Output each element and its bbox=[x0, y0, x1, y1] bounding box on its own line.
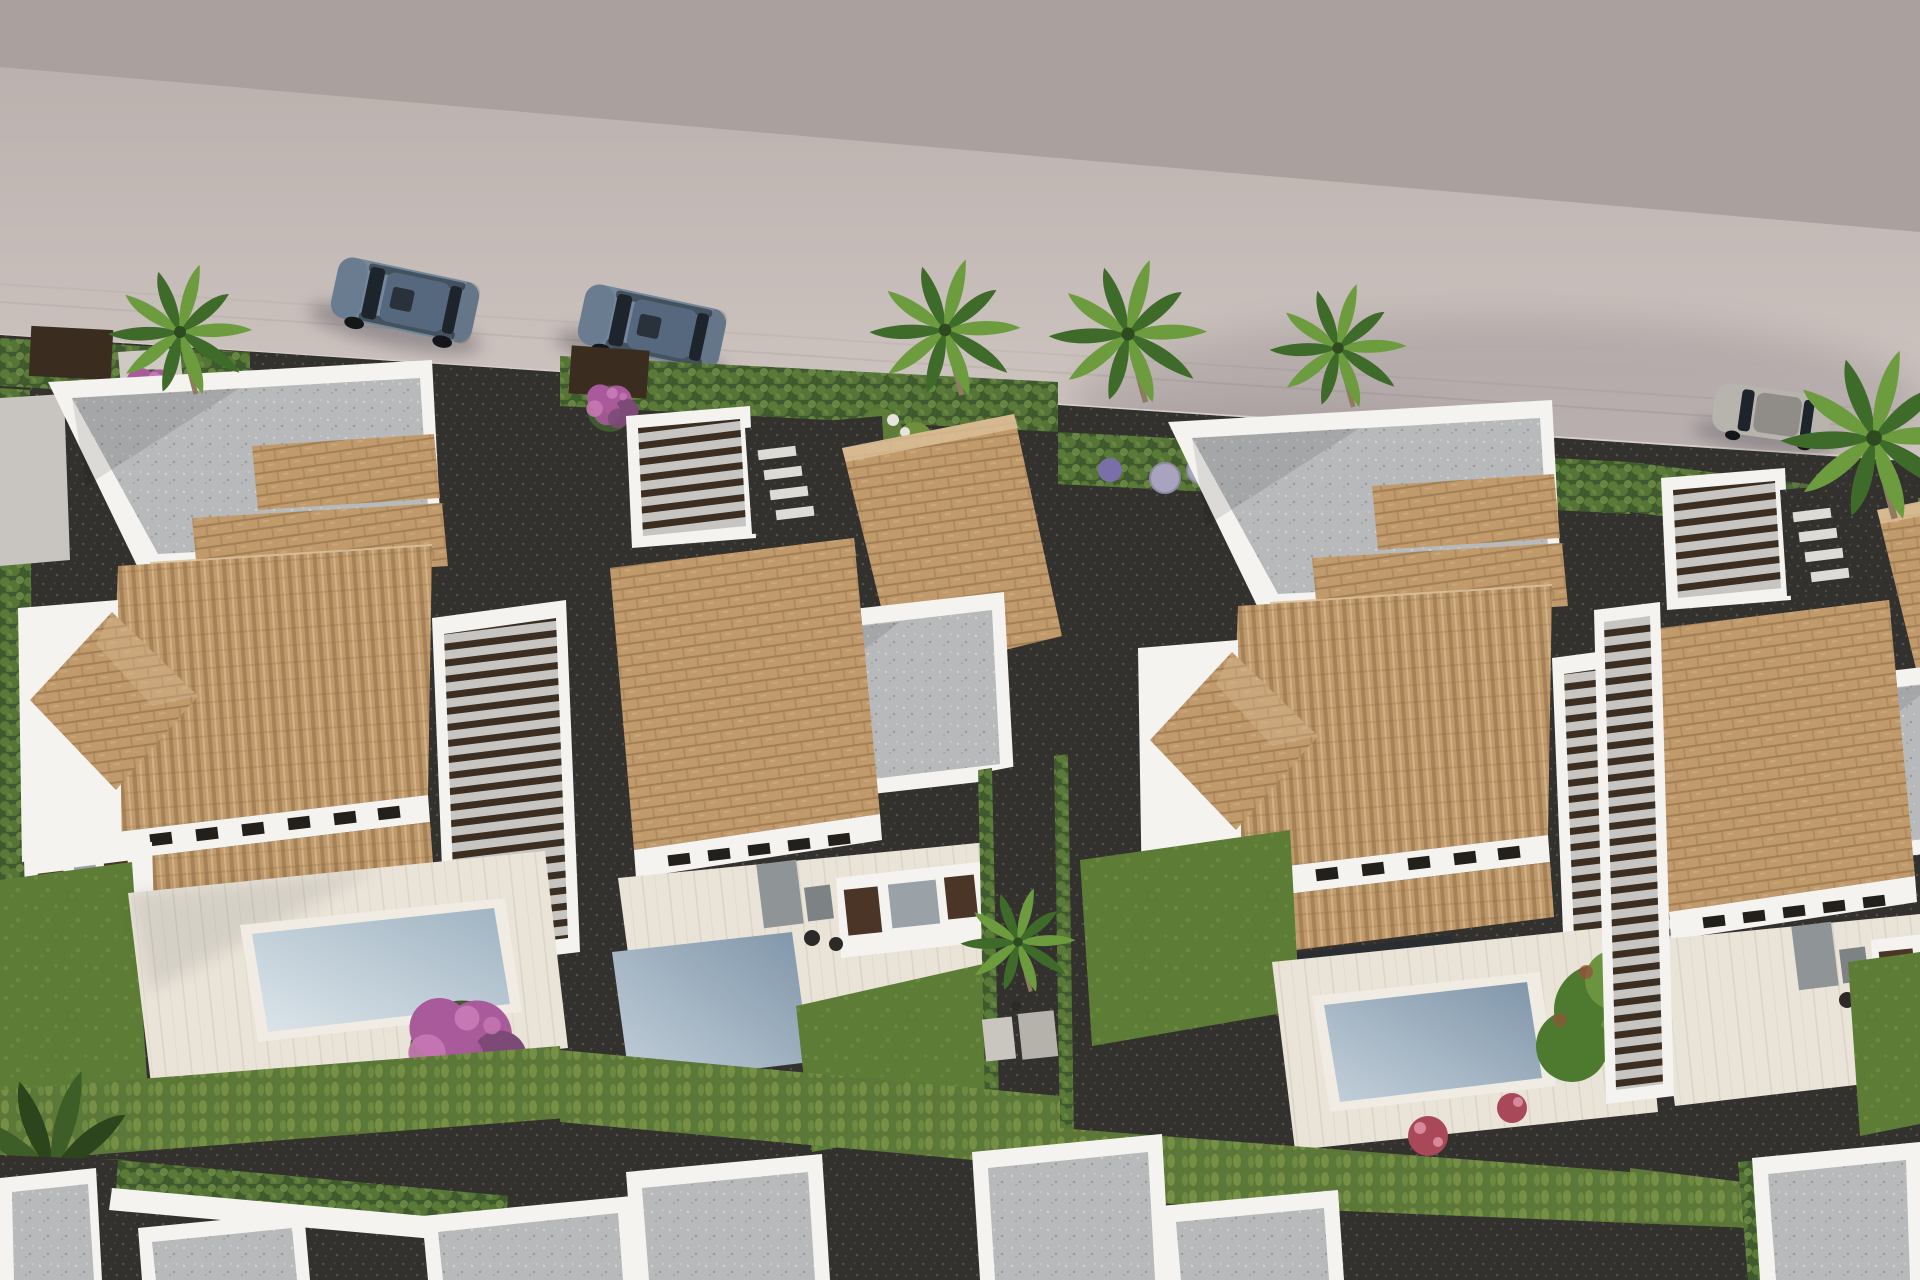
render-canvas bbox=[0, 0, 1920, 1280]
aerial-render bbox=[0, 0, 1920, 1280]
lawn bbox=[1848, 952, 1920, 1136]
entrance-gate bbox=[29, 326, 114, 380]
lawn bbox=[0, 862, 148, 1116]
side-walk bbox=[0, 394, 70, 566]
lawn bbox=[1080, 830, 1300, 1046]
